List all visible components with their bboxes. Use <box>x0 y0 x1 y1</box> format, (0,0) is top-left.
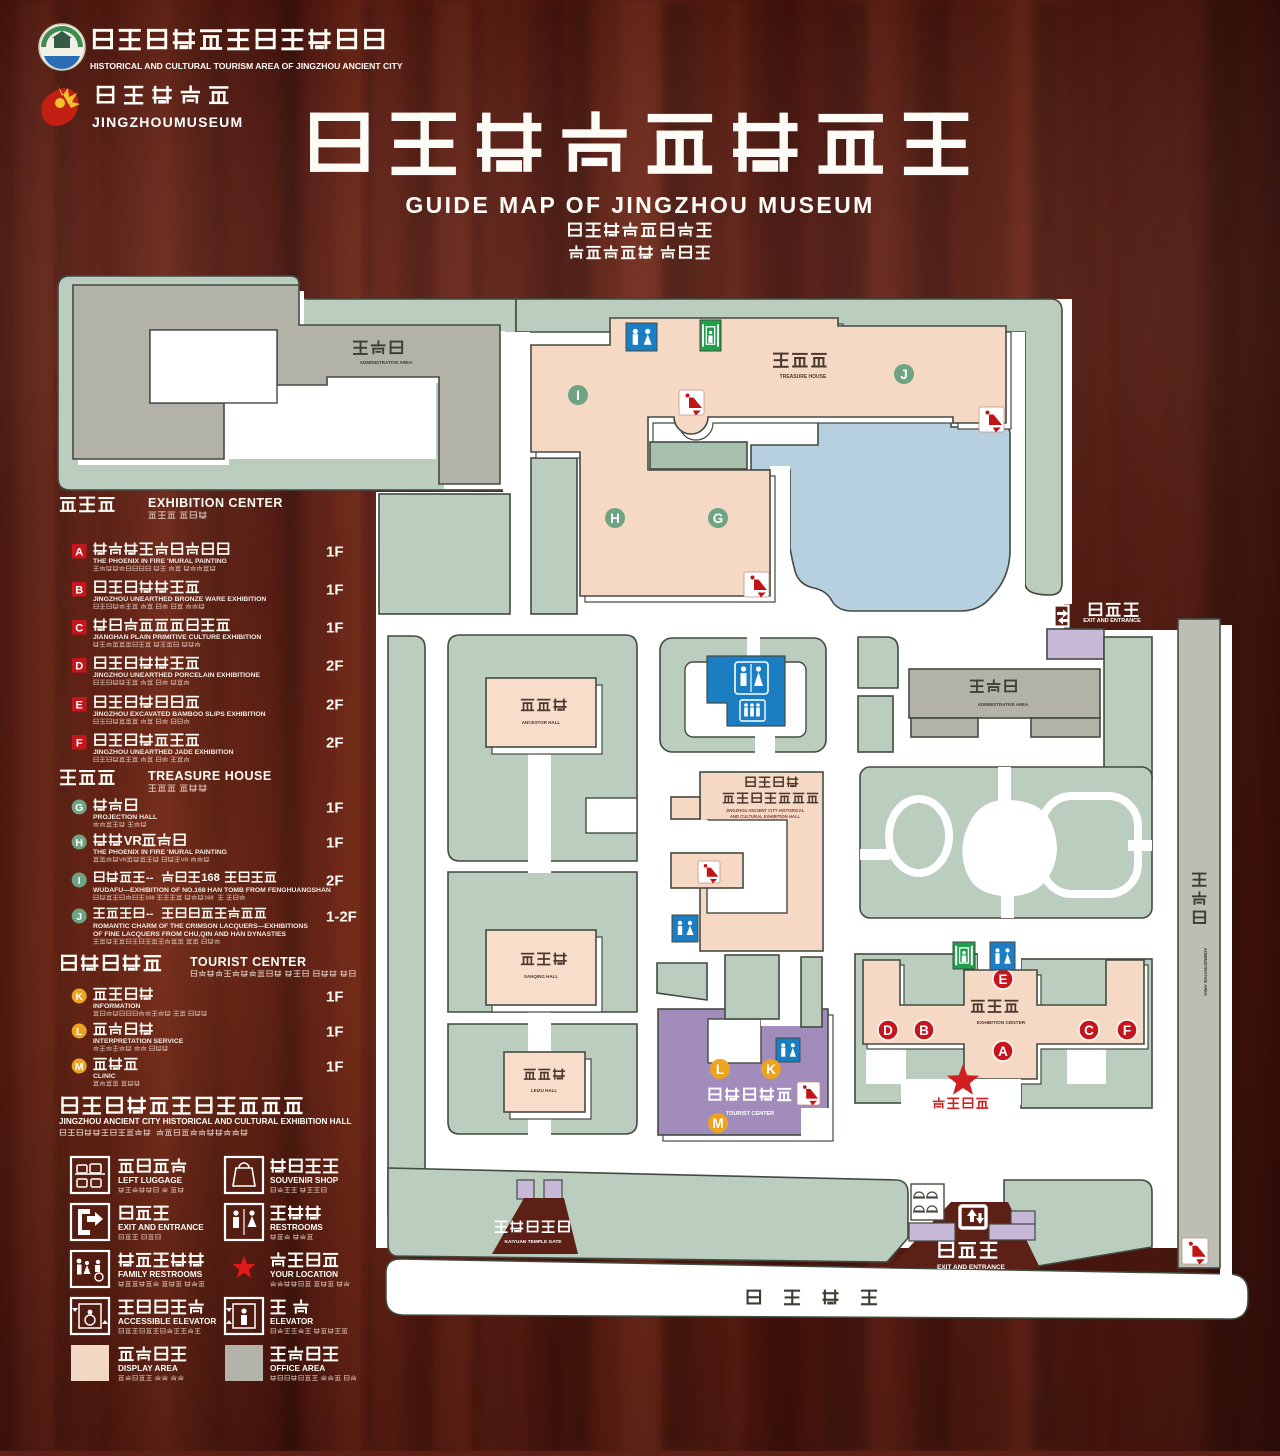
svg-text:ADMINISTRATIVE AREA: ADMINISTRATIVE AREA <box>978 702 1029 707</box>
svg-text:M: M <box>75 1061 84 1073</box>
svg-text:CLINIC: CLINIC <box>93 1073 116 1080</box>
svg-text:OFFICE AREA: OFFICE AREA <box>270 1364 325 1373</box>
svg-text:A: A <box>998 1044 1008 1059</box>
svg-text:G: G <box>713 511 724 526</box>
svg-text:TOURIST CENTER: TOURIST CENTER <box>190 955 307 969</box>
svg-text:JINGZHOU ANCIENT CITY HISTORIC: JINGZHOU ANCIENT CITY HISTORICAL <box>726 808 805 813</box>
svg-text:ADMINISTRATIVE AREA: ADMINISTRATIVE AREA <box>360 360 414 365</box>
svg-text:EXIT AND ENTRANCE: EXIT AND ENTRANCE <box>118 1223 204 1232</box>
svg-text:LEFT LUGGAGE: LEFT LUGGAGE <box>118 1176 183 1185</box>
svg-text:PROJECTION HALL: PROJECTION HALL <box>93 814 157 821</box>
svg-text:F: F <box>1123 1023 1131 1038</box>
svg-text:I: I <box>78 875 81 887</box>
svg-text:H: H <box>75 837 83 849</box>
svg-text:AND CULTURAL EXHIBITION HALL: AND CULTURAL EXHIBITION HALL <box>730 814 801 819</box>
svg-text:K: K <box>766 1062 776 1077</box>
svg-text:1F: 1F <box>326 989 344 1006</box>
svg-text:M: M <box>712 1116 723 1131</box>
svg-text:1F: 1F <box>326 800 344 817</box>
svg-text:C: C <box>1084 1023 1094 1038</box>
svg-text:J: J <box>900 367 908 382</box>
svg-text:C: C <box>75 623 83 635</box>
svg-text:RESTROOMS: RESTROOMS <box>270 1223 323 1232</box>
svg-text:JINGZHOU ANCIENT CITY HISTORIC: JINGZHOU ANCIENT CITY HISTORICAL AND CUL… <box>59 1117 351 1126</box>
svg-text:2F: 2F <box>326 735 344 752</box>
svg-text:1-2F: 1-2F <box>326 909 357 926</box>
svg-text:ADMINISTRATIVE AREA: ADMINISTRATIVE AREA <box>1203 948 1208 996</box>
svg-text:THE PHOENIX IN FIRE 'MURAL PAI: THE PHOENIX IN FIRE 'MURAL PAINTING <box>93 849 227 856</box>
svg-text:K: K <box>75 991 83 1003</box>
svg-text:I: I <box>576 388 580 403</box>
svg-text:KAIYUAN TEMPLE GATE: KAIYUAN TEMPLE GATE <box>505 1239 563 1245</box>
svg-text:168: 168 <box>145 896 154 902</box>
svg-text:THE PHOENIX IN FIRE 'MURAL PAI: THE PHOENIX IN FIRE 'MURAL PAINTING <box>93 558 227 565</box>
svg-text:JINGZHOUMUSEUM: JINGZHOUMUSEUM <box>92 114 243 130</box>
svg-text:D: D <box>75 661 83 673</box>
svg-text:H: H <box>610 511 620 526</box>
svg-text:OF FINE LACQUERS FROM CHU,QIN: OF FINE LACQUERS FROM CHU,QIN AND HAN DY… <box>93 931 287 938</box>
svg-text:INTERPRETATION SERVICE: INTERPRETATION SERVICE <box>93 1038 184 1045</box>
svg-text:HISTORICAL AND CULTURAL TOURIS: HISTORICAL AND CULTURAL TOURISM AREA OF … <box>90 61 403 71</box>
svg-text:2F: 2F <box>326 873 344 890</box>
svg-text:168: 168 <box>204 896 213 902</box>
svg-text:JINGZHOU EXCAVATED BAMBOO SLIP: JINGZHOU EXCAVATED BAMBOO SLIPS EXHIBITI… <box>93 711 266 718</box>
svg-text:SOUVENIR SHOP: SOUVENIR SHOP <box>270 1176 339 1185</box>
svg-text:168: 168 <box>201 872 220 884</box>
svg-text:EXIT AND ENTRANCE: EXIT AND ENTRANCE <box>1083 618 1141 624</box>
svg-text:--: -- <box>146 872 154 884</box>
svg-text:JINGZHOU UNEARTHED JADE EXHIBI: JINGZHOU UNEARTHED JADE EXHIBITION <box>93 749 234 756</box>
svg-text:TREASURE HOUSE: TREASURE HOUSE <box>148 769 272 783</box>
svg-text:B: B <box>75 585 83 597</box>
svg-text:1F: 1F <box>326 582 344 599</box>
svg-text:EXHIBITION CENTER: EXHIBITION CENTER <box>148 496 283 510</box>
svg-text:1F: 1F <box>326 1059 344 1076</box>
svg-text:D: D <box>883 1023 893 1038</box>
svg-text:B: B <box>919 1023 929 1038</box>
svg-text:--: -- <box>146 908 154 920</box>
svg-text:J: J <box>76 911 82 923</box>
svg-text:L: L <box>76 1026 83 1038</box>
svg-text:FAMILY RESTROOMS: FAMILY RESTROOMS <box>118 1270 203 1279</box>
svg-text:1F: 1F <box>326 835 344 852</box>
svg-text:EXIT AND ENTRANCE: EXIT AND ENTRANCE <box>937 1264 1006 1271</box>
svg-text:ANCESTOR HALL: ANCESTOR HALL <box>522 720 561 725</box>
svg-text:GUIDE MAP OF JINGZHOU MUSEUM: GUIDE MAP OF JINGZHOU MUSEUM <box>405 192 874 218</box>
svg-text:TOURIST CENTER: TOURIST CENTER <box>726 1111 774 1117</box>
svg-text:1F: 1F <box>326 544 344 561</box>
svg-text:LEIZU HALL: LEIZU HALL <box>531 1088 557 1093</box>
svg-text:G: G <box>75 802 83 814</box>
svg-text:2F: 2F <box>326 697 344 714</box>
svg-text:TREASURE HOUSE: TREASURE HOUSE <box>780 374 827 380</box>
svg-text:VR: VR <box>119 858 127 864</box>
svg-text:DISPLAY AREA: DISPLAY AREA <box>118 1364 178 1373</box>
svg-text:ELEVATOR: ELEVATOR <box>270 1317 313 1326</box>
svg-text:JINGZHOU UNEARTHED BRONZE WARE: JINGZHOU UNEARTHED BRONZE WARE EXHIBITIO… <box>93 596 266 603</box>
svg-text:JINGZHOU UNEARTHED PORCELAIN E: JINGZHOU UNEARTHED PORCELAIN EXHIBITIONE <box>93 672 260 679</box>
svg-text:A: A <box>75 547 83 559</box>
svg-text:VR: VR <box>124 833 143 848</box>
svg-text:2F: 2F <box>326 658 344 675</box>
svg-text:WUDAFU—EXHIBITION OF NO.168 HA: WUDAFU—EXHIBITION OF NO.168 HAN TOMB FRO… <box>93 887 331 894</box>
svg-text:L: L <box>716 1062 724 1077</box>
svg-text:ROMANTIC CHARM OF THE CRIMSON: ROMANTIC CHARM OF THE CRIMSON LACQUERS—E… <box>93 923 308 930</box>
svg-text:INFORMATION: INFORMATION <box>93 1003 141 1010</box>
svg-text:ACCESSIBLE ELEVATOR: ACCESSIBLE ELEVATOR <box>118 1317 216 1326</box>
svg-text:1F: 1F <box>326 1024 344 1041</box>
svg-text:1F: 1F <box>326 620 344 637</box>
svg-text:E: E <box>76 700 83 712</box>
svg-text:EXHIBITION CENTER: EXHIBITION CENTER <box>977 1020 1026 1026</box>
svg-text:E: E <box>998 972 1007 987</box>
svg-text:SANQING HALL: SANQING HALL <box>524 974 559 979</box>
svg-text:F: F <box>76 738 83 750</box>
svg-text:JIANGHAN PLAIN PRIMITIVE CULTU: JIANGHAN PLAIN PRIMITIVE CULTURE EXHIBIT… <box>93 634 261 641</box>
svg-text:VR: VR <box>181 858 189 864</box>
svg-text:YOUR LOCATION: YOUR LOCATION <box>270 1270 338 1279</box>
